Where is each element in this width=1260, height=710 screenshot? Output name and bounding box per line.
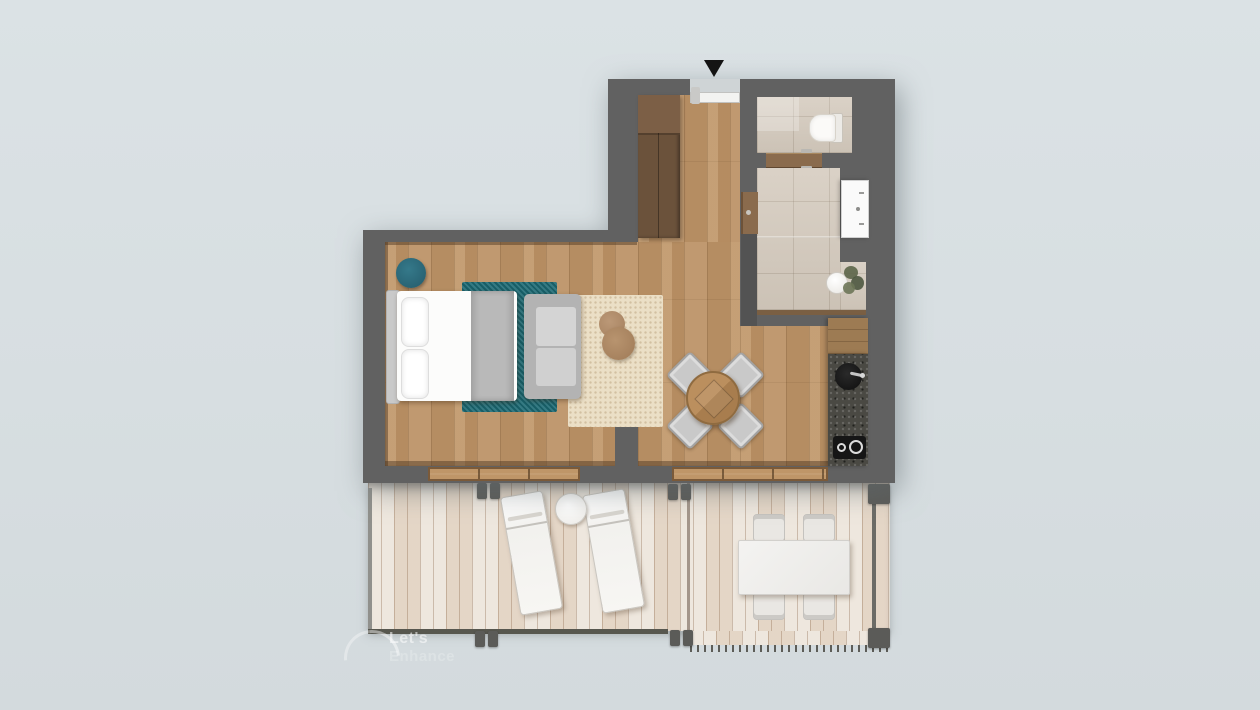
sofa-cushion xyxy=(536,307,576,346)
sliding-door-threshold-right xyxy=(672,467,828,481)
sofa xyxy=(524,294,581,399)
sofa-cushion xyxy=(536,348,576,386)
dining-table-parquet-diamond xyxy=(694,379,734,419)
wc-sliding-door xyxy=(766,153,822,168)
wardrobe-shelf-section xyxy=(638,95,680,135)
vanity-sink xyxy=(841,180,869,238)
bathroom-baseboard xyxy=(757,310,866,315)
cooktop xyxy=(833,436,866,459)
entry-door-handle xyxy=(691,87,700,104)
vanity-drain xyxy=(856,207,860,211)
bed-runner-blanket xyxy=(471,291,514,401)
bed-pillow xyxy=(401,349,429,399)
coffee-table-large xyxy=(602,327,635,360)
sliding-door-threshold-left xyxy=(428,467,580,481)
teal-pouf xyxy=(396,258,426,288)
vanity-faucet-mark xyxy=(859,192,864,194)
vanity-faucet-mark xyxy=(859,223,864,225)
bathroom-wall-dark-strip xyxy=(741,234,757,326)
floor-plan-canvas: Let's Enhance xyxy=(0,0,1260,710)
cooktop-burner-small xyxy=(837,443,846,452)
kitchen-sink xyxy=(835,363,862,390)
shower-drain-line xyxy=(757,236,840,238)
cooktop-burner-large xyxy=(849,440,863,454)
entrance-arrow-icon xyxy=(704,60,724,77)
kitchen-counter-wood xyxy=(828,318,868,354)
dining-table xyxy=(686,371,740,425)
watermark-text-line1: Let's xyxy=(389,630,428,648)
wardrobe-divider xyxy=(658,133,659,238)
watermark-text-line2: Enhance xyxy=(389,648,455,665)
plant xyxy=(843,282,855,294)
toilet-bowl xyxy=(809,114,836,142)
wall-pier xyxy=(615,427,638,469)
building xyxy=(0,0,1260,710)
bathroom-door xyxy=(741,192,758,234)
bathroom-door-handle xyxy=(746,210,751,215)
wardrobe xyxy=(638,95,680,238)
skirting-top xyxy=(385,242,637,245)
wc-door-handle xyxy=(801,149,812,153)
bed-pillow xyxy=(401,297,429,347)
kitchen-faucet-base xyxy=(860,373,865,378)
wc-tile-highlight xyxy=(757,97,799,131)
